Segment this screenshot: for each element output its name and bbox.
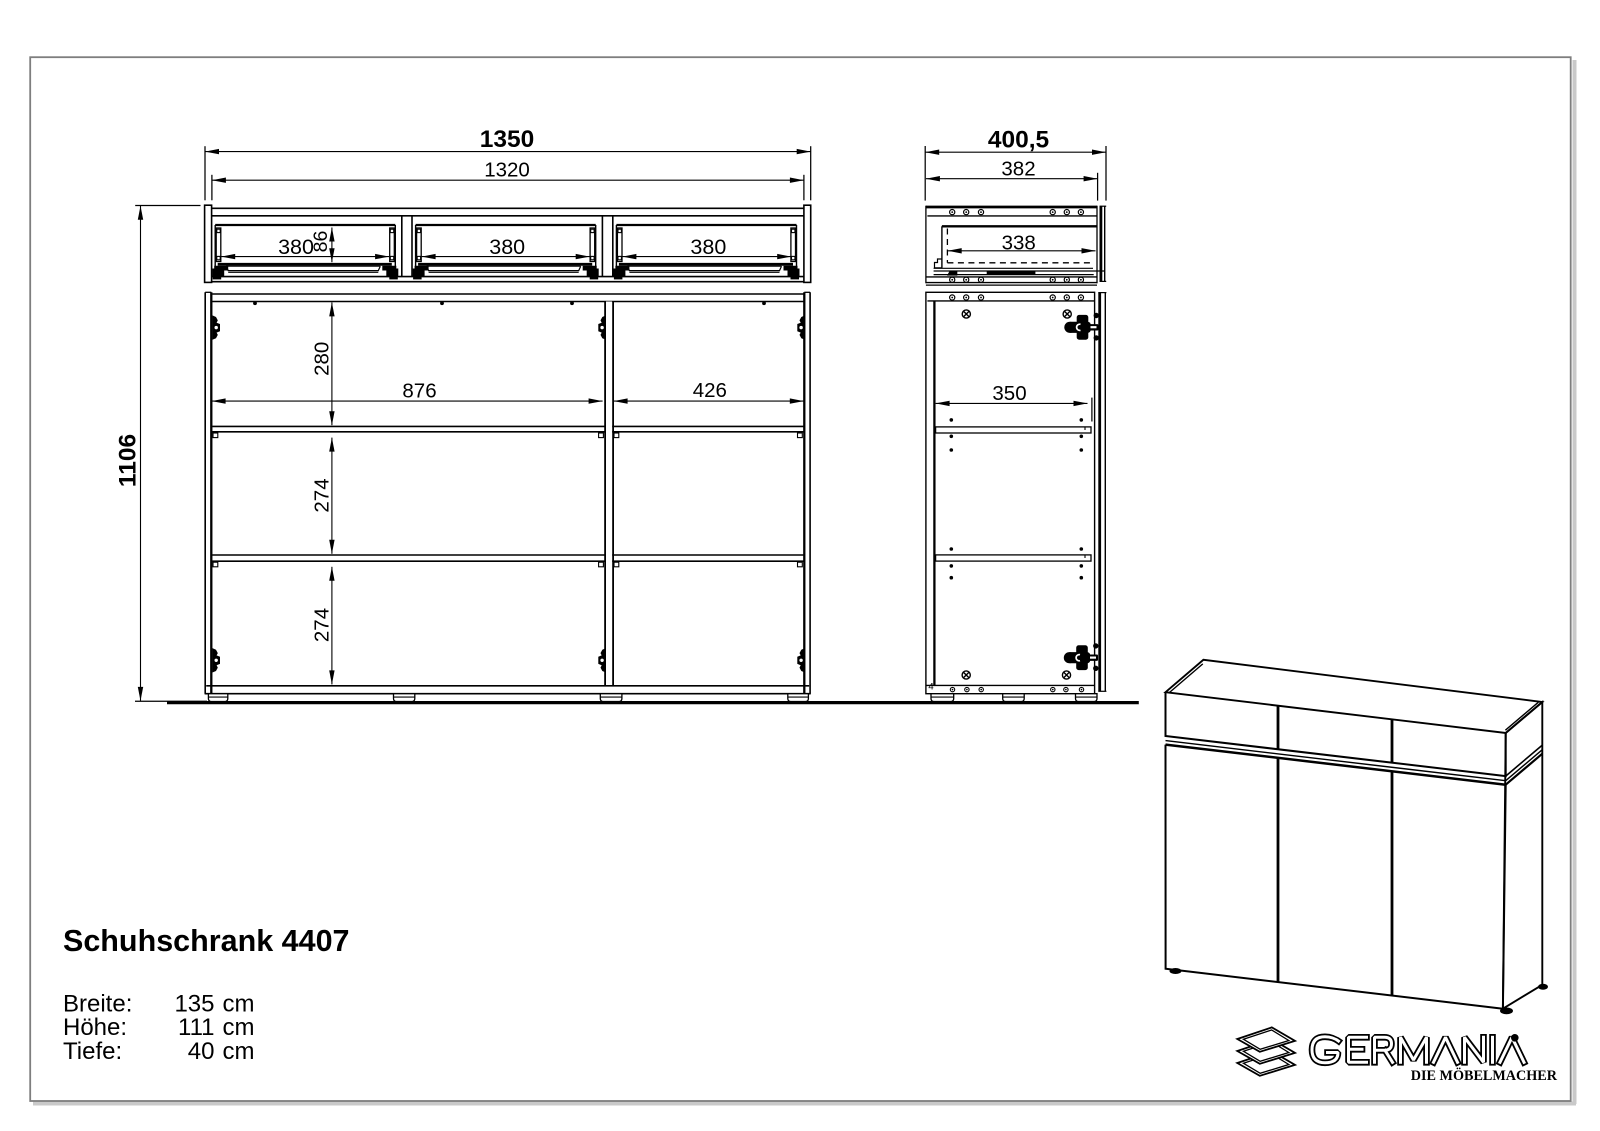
svg-text:380: 380 <box>278 235 314 259</box>
svg-text:cm: cm <box>223 1038 255 1065</box>
svg-text:Tiefe:: Tiefe: <box>63 1038 122 1065</box>
svg-text:274: 274 <box>311 608 334 642</box>
svg-text:876: 876 <box>402 379 436 402</box>
svg-text:1106: 1106 <box>114 434 141 487</box>
svg-text:400,5: 400,5 <box>988 127 1049 154</box>
svg-text:426: 426 <box>693 379 727 402</box>
svg-text:1320: 1320 <box>484 159 530 182</box>
svg-text:Schuhschrank 4407: Schuhschrank 4407 <box>63 924 350 958</box>
svg-text:4: 4 <box>928 682 933 693</box>
svg-text:350: 350 <box>992 382 1026 405</box>
svg-text:40: 40 <box>188 1038 215 1065</box>
svg-text:86: 86 <box>310 231 332 253</box>
svg-text:380: 380 <box>690 235 726 259</box>
svg-text:1350: 1350 <box>480 126 535 153</box>
svg-text:380: 380 <box>489 235 525 259</box>
svg-text:338: 338 <box>1002 231 1036 254</box>
svg-text:DIE MÖBELMACHER: DIE MÖBELMACHER <box>1411 1067 1558 1084</box>
svg-text:382: 382 <box>1001 157 1035 180</box>
svg-text:274: 274 <box>311 478 334 512</box>
svg-text:280: 280 <box>311 342 334 376</box>
